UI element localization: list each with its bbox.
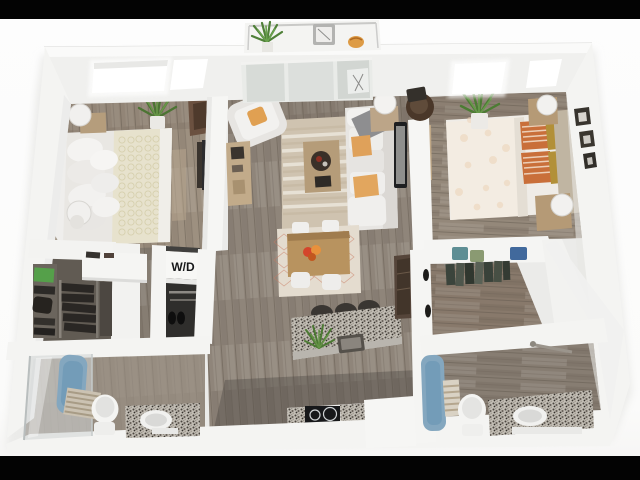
svg-text:W/D: W/D [171, 260, 195, 274]
